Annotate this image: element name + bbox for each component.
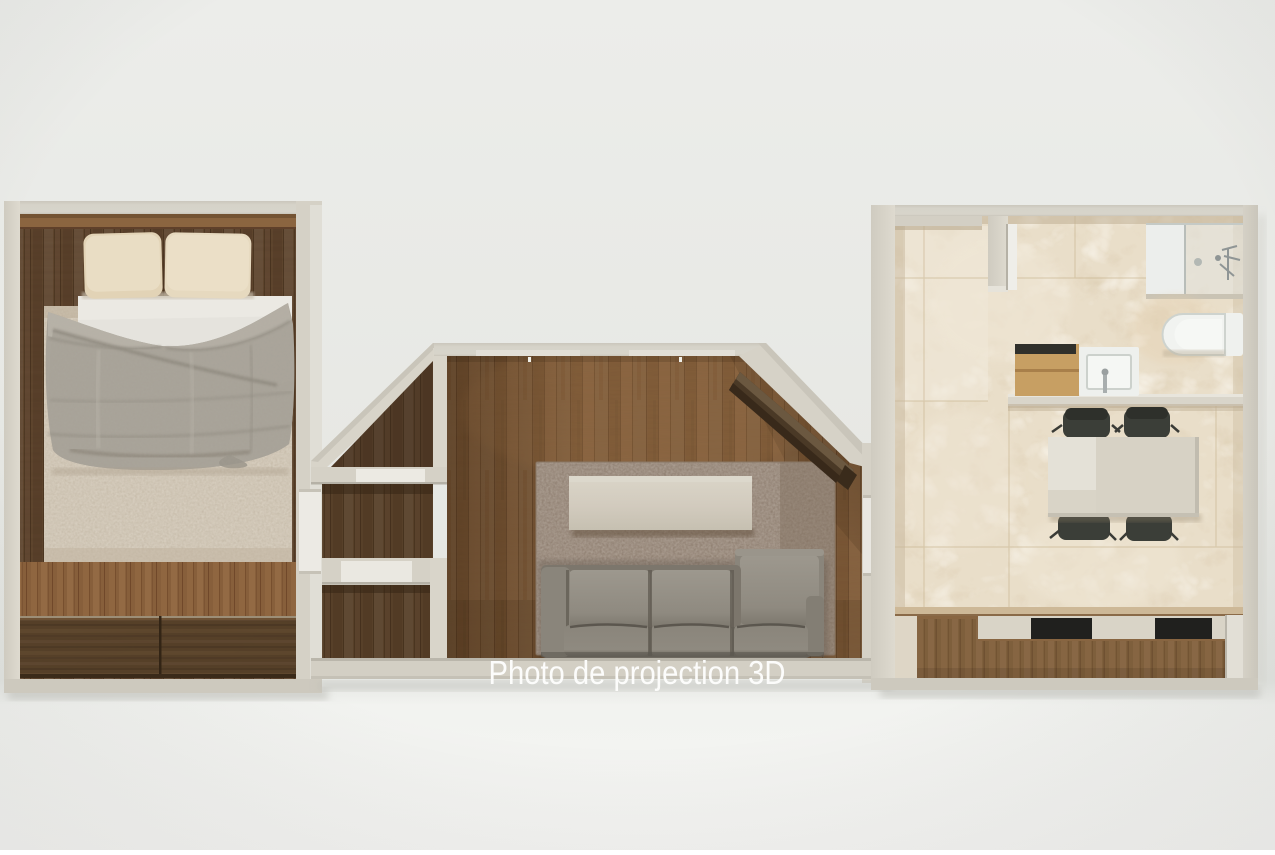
svg-text:Photo de projection 3D: Photo de projection 3D bbox=[489, 654, 786, 691]
